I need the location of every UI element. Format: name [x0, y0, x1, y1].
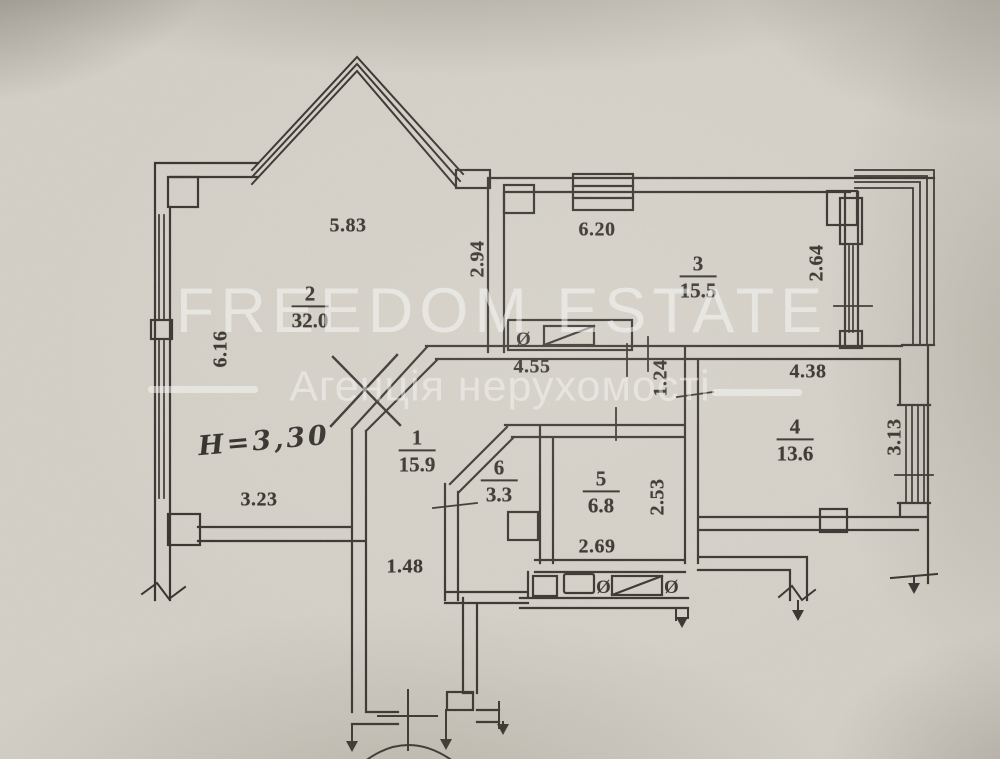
watermark-brand: FREEDOM ESTATE: [176, 275, 828, 347]
watermark-dash-left: [148, 386, 258, 393]
watermark-dash-right: [712, 389, 802, 396]
watermark-tagline: Агенція нерухомості: [289, 363, 710, 412]
watermark-layer: FREEDOM ESTATE Агенція нерухомості: [0, 0, 1000, 759]
floorplan-photo: Ø Ø Ø 5.83 6.16 2.94 3.23 6.20 2.64 4.55…: [0, 0, 1000, 759]
